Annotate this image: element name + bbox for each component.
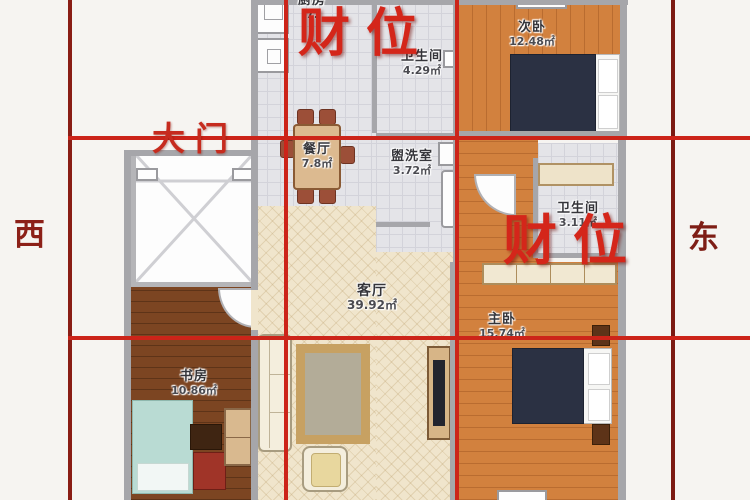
master-nightstand-bottom <box>592 424 610 445</box>
fengshui-floorplan: 厨房 7. 卫生间 4.29㎡ 次卧 12.48㎡ 餐厅 7.8㎡ 盥洗室 3.… <box>0 0 750 500</box>
armchair-cushion <box>311 453 341 487</box>
room-area: 39.92㎡ <box>340 299 404 313</box>
dining-chair <box>297 109 314 125</box>
grid-vertical-line-3 <box>455 0 459 500</box>
room-area: 12.48㎡ <box>500 36 564 49</box>
study-red-chair <box>193 452 226 490</box>
living-rug <box>296 344 370 444</box>
master-bed-mattress <box>582 348 612 424</box>
grid-vertical-line-4 <box>671 0 675 500</box>
room-name: 客厅 <box>340 283 404 299</box>
master-bed-duvet <box>512 348 584 424</box>
room-area: 10.86㎡ <box>162 385 226 398</box>
sofa-back-line <box>269 338 270 448</box>
pillow <box>588 353 610 385</box>
room-label-second-bedroom: 次卧 12.48㎡ <box>500 21 564 49</box>
second-bedroom-right-wall <box>620 0 627 140</box>
room-name: 盥洗室 <box>380 150 444 165</box>
grid-horizontal-line-2 <box>68 336 750 340</box>
study-door-gap <box>251 290 258 330</box>
master-bath-counter <box>538 163 614 186</box>
dining-chair <box>319 188 336 204</box>
study-desk <box>190 424 222 450</box>
entry-step-left <box>136 168 158 181</box>
study-bed-sheet <box>137 463 189 491</box>
grid-vertical-line-1 <box>68 0 72 500</box>
room-label-living: 客厅 39.92㎡ <box>340 283 404 313</box>
second-bedroom-bed-mattress <box>594 54 620 132</box>
room-area: 7.8㎡ <box>287 158 347 171</box>
room-name: 书房 <box>162 370 226 385</box>
study-cabinet <box>224 408 252 466</box>
study-bed <box>132 400 193 494</box>
room-label-study: 书房 10.86㎡ <box>162 370 226 398</box>
pillow <box>598 59 618 93</box>
dining-chair <box>319 109 336 125</box>
wealth-position-label-top: 财位 <box>298 8 434 60</box>
dining-chair <box>297 188 314 204</box>
master-bench <box>497 490 547 500</box>
core-left-wall <box>251 0 258 500</box>
laundry-bottom-divider <box>376 222 430 227</box>
outer-left-wall <box>124 150 131 500</box>
cabinet-divider <box>226 437 250 438</box>
armchair <box>302 446 348 492</box>
room-name: 餐厅 <box>287 143 347 158</box>
room-name: 次卧 <box>500 21 564 36</box>
pillow <box>598 95 618 129</box>
stove-burner <box>267 49 281 64</box>
sink-basin <box>264 4 283 20</box>
second-bedroom-duvet <box>510 54 596 132</box>
tv-cabinet <box>427 346 451 440</box>
room-area: 4.29㎡ <box>390 65 454 78</box>
main-door-label: 大门 <box>152 122 238 155</box>
pillow <box>588 389 610 421</box>
room-area: 3.72㎡ <box>380 165 444 178</box>
compass-west-label: 西 <box>14 220 45 251</box>
room-label-laundry: 盥洗室 3.72㎡ <box>380 150 444 178</box>
grid-vertical-line-2 <box>284 0 288 500</box>
wealth-position-label-right: 财位 <box>503 214 643 268</box>
room-label-dining: 餐厅 7.8㎡ <box>287 143 347 171</box>
room-name: 主卧 <box>470 313 534 328</box>
compass-east-label: 东 <box>688 223 719 254</box>
master-right-wall <box>618 137 626 500</box>
tv-screen <box>433 360 445 426</box>
